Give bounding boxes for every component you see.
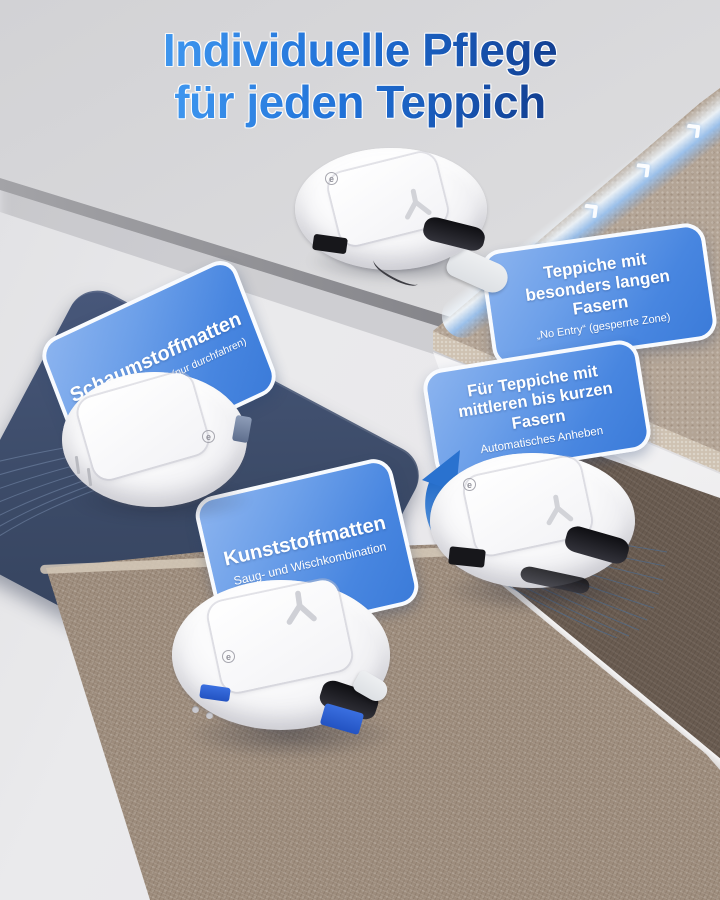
dustbin-port	[448, 546, 486, 568]
product-scene: Schaumstoffmatten „Pass Through Only“ (n…	[0, 0, 720, 900]
title-line-1: Individuelle Pflege	[163, 24, 557, 76]
robot-vacuum-right: e	[425, 448, 655, 628]
callout-title: Für Teppiche mit mittleren bis kurzen Fa…	[435, 357, 636, 445]
page-title: Individuelle Pflege für jeden Teppich	[0, 24, 720, 129]
path-chevron-icon	[636, 163, 650, 177]
bumper-clip	[232, 415, 252, 443]
eufy-logo-icon: e	[325, 172, 338, 185]
eufy-logo-icon: e	[222, 650, 235, 663]
eufy-logo-icon: e	[463, 478, 476, 491]
robot-vacuum-left: e	[62, 372, 267, 537]
robot-vacuum-top: e	[295, 148, 510, 313]
eufy-logo-icon: e	[202, 430, 215, 443]
charge-contact	[206, 712, 213, 719]
charge-contact	[192, 706, 199, 713]
lid-latch-icon	[274, 587, 327, 629]
path-chevron-icon	[583, 204, 597, 218]
title-line-2: für jeden Teppich	[174, 76, 545, 128]
robot-vacuum-bottom: e	[172, 580, 417, 775]
